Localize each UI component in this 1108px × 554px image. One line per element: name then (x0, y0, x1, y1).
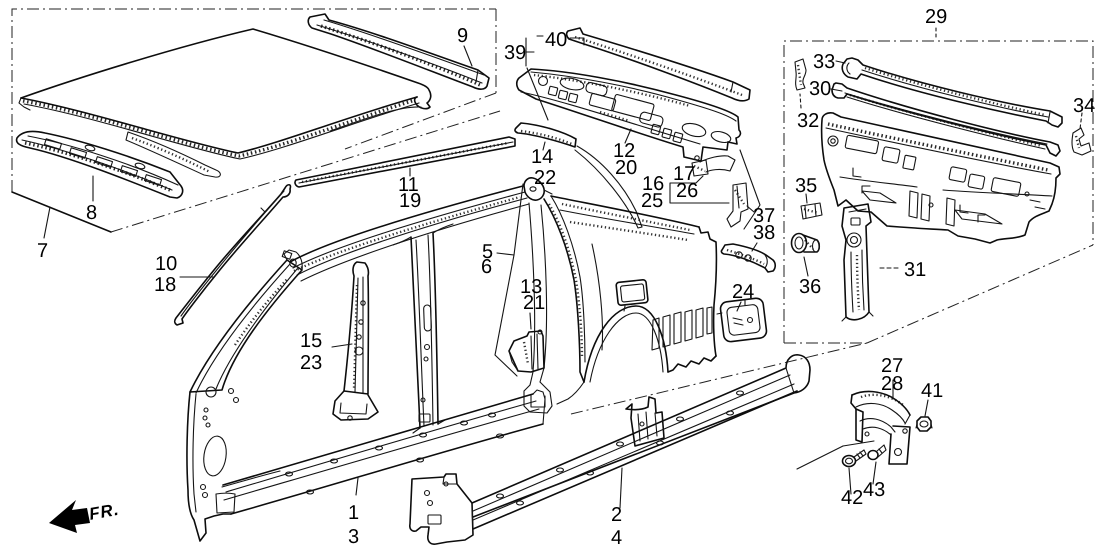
svg-text:4: 4 (611, 527, 622, 549)
svg-text:20: 20 (615, 157, 637, 179)
svg-text:8: 8 (86, 202, 97, 224)
svg-text:42: 42 (841, 487, 863, 509)
svg-text:38: 38 (753, 222, 775, 244)
svg-text:18: 18 (154, 274, 176, 296)
svg-text:7: 7 (37, 240, 48, 262)
svg-text:41: 41 (921, 380, 943, 402)
svg-text:19: 19 (399, 190, 421, 212)
svg-text:25: 25 (641, 190, 663, 212)
svg-text:24: 24 (732, 281, 754, 303)
svg-text:26: 26 (676, 180, 698, 202)
svg-text:3: 3 (348, 526, 359, 548)
svg-text:1: 1 (348, 502, 359, 524)
svg-text:31: 31 (904, 259, 926, 281)
svg-text:15: 15 (300, 330, 322, 352)
svg-text:28: 28 (881, 373, 903, 395)
svg-text:40: 40 (545, 29, 567, 51)
svg-text:23: 23 (300, 352, 322, 374)
svg-text:33: 33 (813, 51, 835, 73)
svg-text:10: 10 (155, 253, 177, 275)
svg-text:14: 14 (531, 146, 553, 168)
svg-text:30: 30 (809, 78, 831, 100)
svg-text:34: 34 (1073, 95, 1095, 117)
svg-text:9: 9 (457, 25, 468, 47)
svg-text:39: 39 (504, 42, 526, 64)
svg-text:43: 43 (863, 479, 885, 501)
svg-text:2: 2 (611, 504, 622, 526)
svg-text:6: 6 (481, 256, 492, 278)
svg-text:35: 35 (795, 175, 817, 197)
svg-text:36: 36 (799, 276, 821, 298)
svg-text:21: 21 (523, 292, 545, 314)
svg-text:32: 32 (797, 110, 819, 132)
svg-text:22: 22 (534, 167, 556, 189)
svg-text:29: 29 (925, 6, 947, 28)
